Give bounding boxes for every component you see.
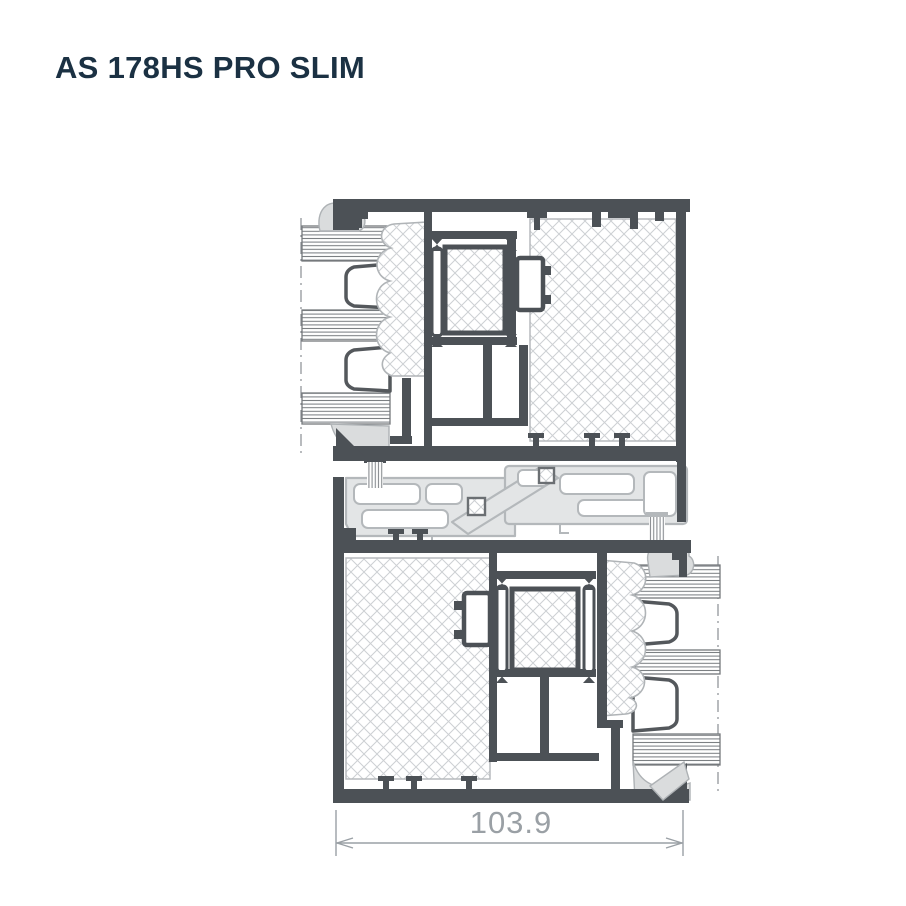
profile-cross-section-drawing: 103.9 (0, 0, 906, 906)
glass-pane (633, 734, 720, 765)
interlock-chamber (426, 484, 462, 504)
page: AS 178HS PRO SLIM (0, 0, 906, 906)
interlock-chamber (354, 484, 420, 504)
clip-tooth (454, 630, 464, 639)
glass-pane (633, 650, 720, 674)
clip-tooth (541, 295, 551, 304)
hardware-clip (464, 593, 490, 645)
interlock-gasket-fitting (468, 498, 485, 515)
brush-seal-holder (646, 512, 668, 517)
brush-seal-icon (367, 462, 383, 488)
brush-seal-icon (649, 517, 665, 542)
dimension-value: 103.9 (470, 805, 553, 840)
interlock-chamber (362, 510, 448, 528)
hardware-clip (517, 258, 543, 310)
clip-tooth (541, 266, 551, 275)
interlock-chamber (560, 474, 634, 494)
bead-insulation-core (445, 247, 505, 333)
interlock-chamber (644, 472, 676, 516)
glazing-bead (497, 586, 507, 672)
glazing-bead (432, 248, 442, 336)
interlock-chamber (578, 500, 652, 516)
insulation-panel (530, 219, 676, 441)
clip-tooth (454, 601, 464, 610)
interlock-gasket-fitting (539, 468, 554, 483)
bead-insulation-core (512, 589, 578, 670)
glazing-bead (584, 586, 594, 672)
dimension-annotation: 103.9 (336, 805, 683, 856)
glass-pane (302, 393, 390, 424)
